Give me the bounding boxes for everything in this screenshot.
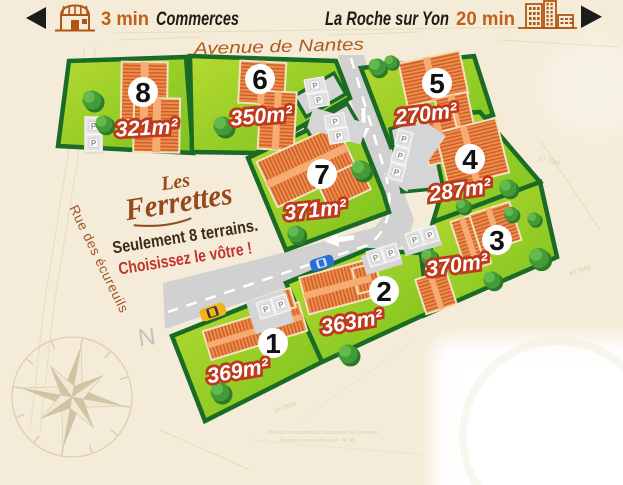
svg-text:La Roche sur Yon: La Roche sur Yon: [325, 8, 449, 30]
svg-text:1: 1: [265, 328, 281, 359]
svg-text:P: P: [91, 139, 97, 148]
svg-text:8: 8: [135, 77, 151, 108]
svg-text:document non contractuel - AV: document non contractuel - AV 45: [280, 438, 355, 444]
svg-text:20 min: 20 min: [456, 8, 515, 30]
svg-text:4: 4: [462, 144, 478, 175]
svg-text:5: 5: [429, 68, 445, 99]
svg-text:3: 3: [489, 225, 505, 256]
svg-text:321m²: 321m²: [115, 114, 179, 141]
svg-text:Plan de composition du lotisse: Plan de composition du lotissement Les F…: [268, 430, 378, 436]
svg-text:2: 2: [376, 276, 392, 307]
svg-text:3 min: 3 min: [101, 8, 149, 30]
svg-text:Commerces: Commerces: [156, 8, 239, 30]
svg-text:6: 6: [252, 64, 268, 95]
svg-text:7: 7: [314, 159, 330, 190]
